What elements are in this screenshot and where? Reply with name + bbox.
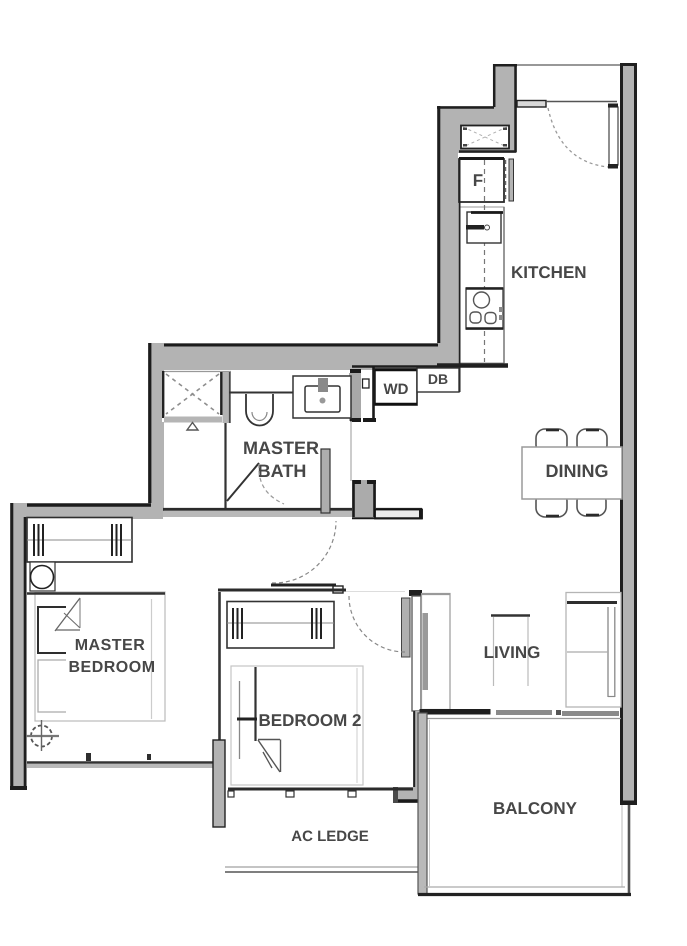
svg-text:MASTER: MASTER [75,637,146,654]
svg-text:BEDROOM: BEDROOM [68,659,155,676]
svg-text:BATH: BATH [258,461,307,481]
svg-text:KITCHEN: KITCHEN [511,263,587,282]
svg-text:AC LEDGE: AC LEDGE [291,828,369,845]
svg-text:MASTER: MASTER [243,438,319,458]
svg-text:BEDROOM 2: BEDROOM 2 [259,711,362,730]
svg-text:WD: WD [384,381,409,398]
svg-text:LIVING: LIVING [484,643,541,662]
svg-text:F: F [473,171,483,190]
svg-text:DINING: DINING [546,461,609,481]
svg-text:DB: DB [428,371,448,387]
svg-text:BALCONY: BALCONY [493,799,578,818]
